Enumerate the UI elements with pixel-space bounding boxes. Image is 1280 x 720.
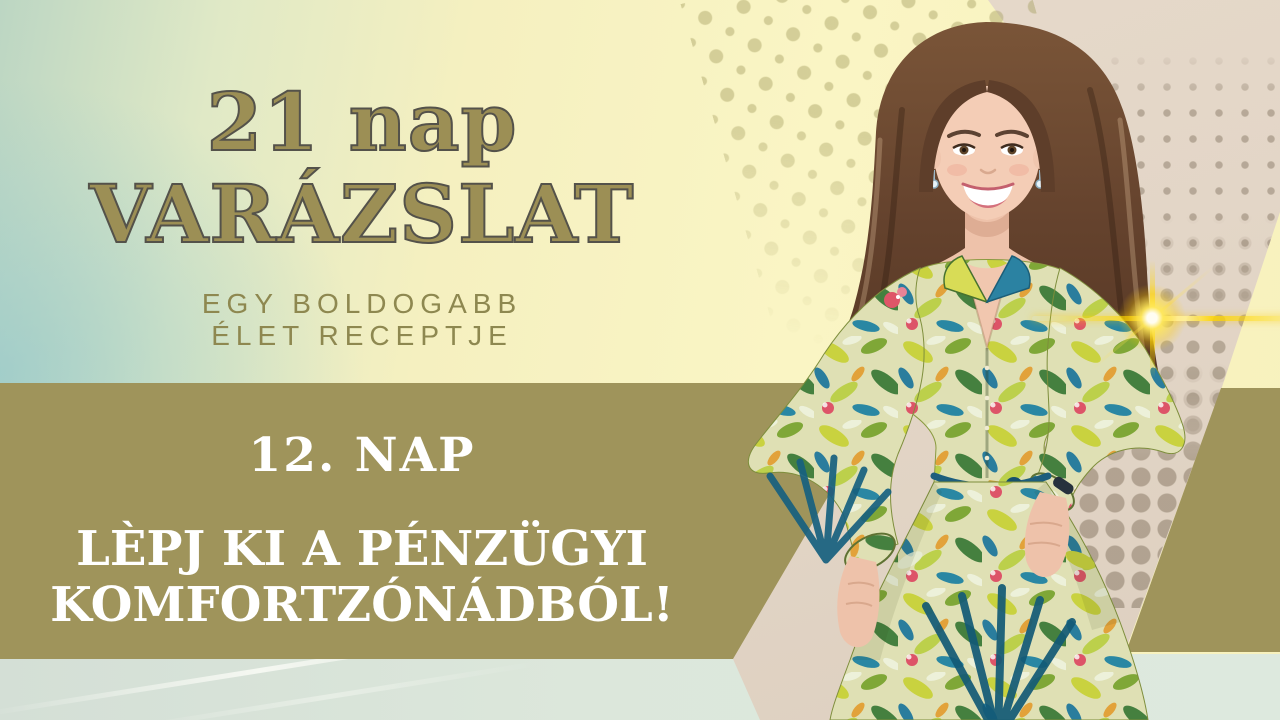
woman-photo bbox=[730, 0, 1190, 720]
episode-headline-line1: LÈPJ KI A PÉNZÜGYI bbox=[0, 521, 724, 577]
program-subtitle-line2: ÉLET RECEPTJE bbox=[0, 320, 724, 352]
program-title-line1: 21 nap bbox=[0, 76, 724, 168]
program-subtitle: EGY BOLDOGABB ÉLET RECEPTJE bbox=[0, 288, 724, 352]
program-title: 21 nap VARÁZSLAT bbox=[0, 76, 724, 260]
episode-headline-line2: KOMFORTZÓNÁDBÓL! bbox=[0, 577, 724, 633]
promo-banner: 21 nap VARÁZSLAT EGY BOLDOGABB ÉLET RECE… bbox=[0, 0, 1280, 720]
episode-headline: LÈPJ KI A PÉNZÜGYI KOMFORTZÓNÁDBÓL! bbox=[0, 521, 724, 633]
day-label: 12. NAP bbox=[0, 428, 724, 483]
program-subtitle-line1: EGY BOLDOGABB bbox=[0, 288, 724, 320]
text-column: 21 nap VARÁZSLAT EGY BOLDOGABB ÉLET RECE… bbox=[0, 0, 724, 720]
program-title-line2: VARÁZSLAT bbox=[0, 168, 724, 260]
